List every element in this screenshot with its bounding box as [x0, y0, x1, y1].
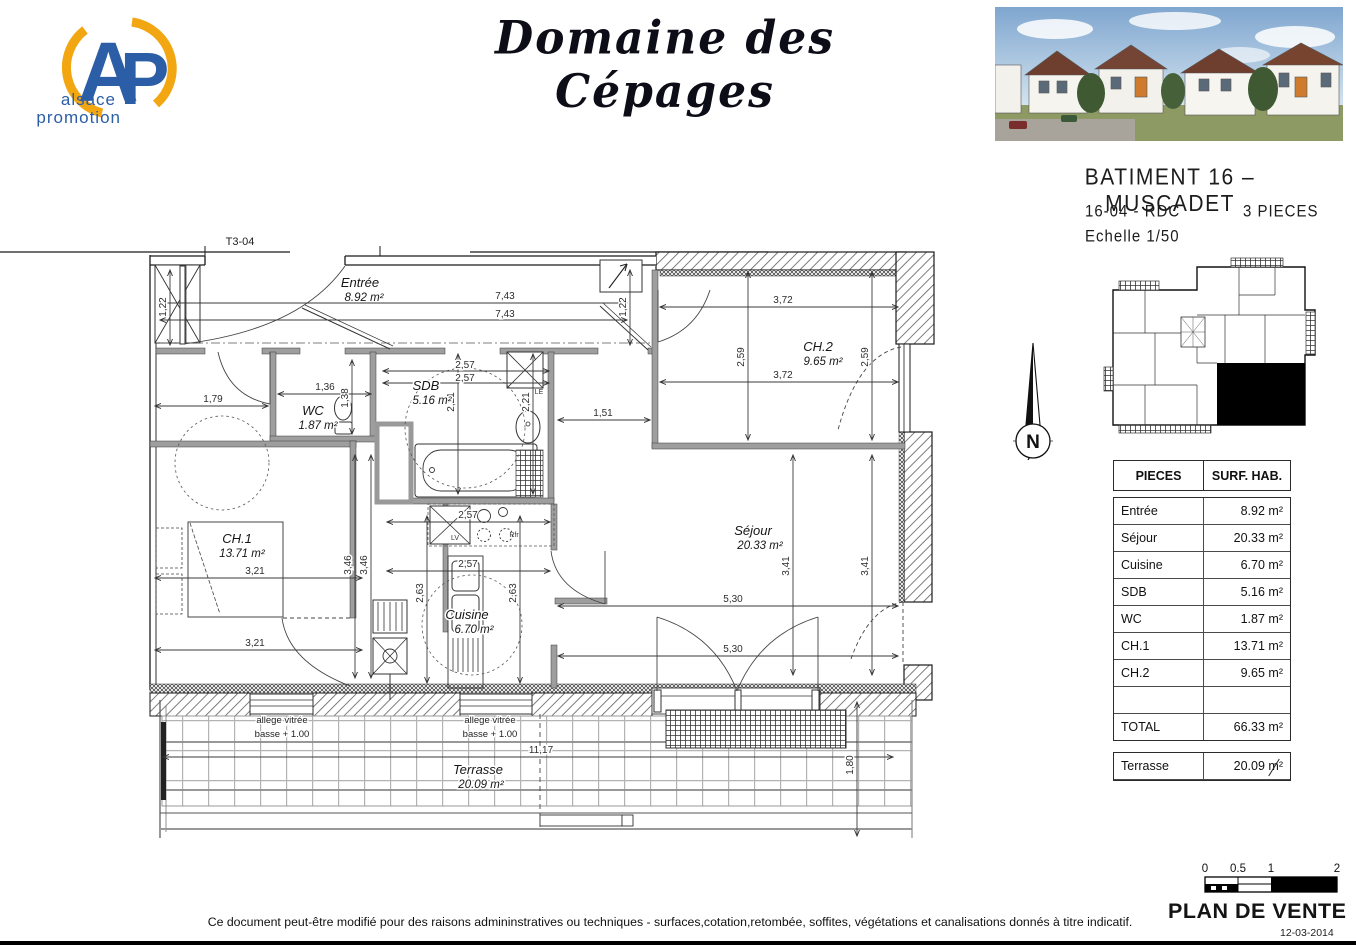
dim-label: 3,41: [860, 556, 871, 576]
scale-tick-0: 0: [1202, 863, 1208, 875]
col-header-surface: SURF. HAB.: [1204, 461, 1290, 490]
scale-tick-05: 0.5: [1230, 863, 1246, 875]
room-label-wc: WC: [302, 403, 324, 418]
plan-ref-label: T3-04: [226, 236, 255, 248]
room-label-sejour: Séjour: [734, 523, 772, 538]
room-area: 9.65 m²: [1204, 660, 1290, 686]
dim-label: 2,57: [458, 559, 478, 570]
dim-label: 3,46: [343, 555, 354, 575]
dim-label: 1,38: [340, 388, 351, 408]
note-lv: LV: [451, 535, 459, 542]
scale-tick-2: 2: [1334, 863, 1340, 875]
room-area: 5.16 m²: [1204, 579, 1290, 605]
floor-plan: T3-04: [0, 228, 960, 860]
date-label: 12-03-2014: [1280, 927, 1334, 939]
room-area-terrasse: 20.09 m²: [457, 779, 505, 791]
dim-label: 5,30: [723, 644, 743, 655]
table-body: Entrée8.92 m² Séjour20.33 m² Cuisine6.70…: [1113, 497, 1291, 741]
dim-label: 2,57: [455, 373, 475, 384]
total-label: TOTAL: [1114, 714, 1204, 740]
room-label-entree: Entrée: [341, 275, 379, 290]
room-area-sdb: 5.16 m²: [413, 395, 453, 407]
scale-tick-1: 1: [1268, 863, 1274, 875]
note-le: LE: [535, 389, 544, 396]
room-name: WC: [1114, 606, 1204, 632]
dim-label: 1,51: [593, 408, 613, 419]
table-row-total: TOTAL66.33 m²: [1114, 714, 1290, 740]
dim-label: 2,57: [455, 360, 475, 371]
table-row: Cuisine6.70 m²: [1114, 552, 1290, 579]
room-area: 8.92 m²: [1204, 498, 1290, 524]
room-area: 20.33 m²: [1204, 525, 1290, 551]
scale-bar: 0 0.5 1 2: [1198, 860, 1348, 900]
table-header: PIECES SURF. HAB.: [1113, 460, 1291, 491]
project-rendering-photo: [995, 7, 1343, 141]
turning-circle-ch1: [175, 416, 269, 510]
room-name: [1114, 687, 1204, 713]
dim-label: 3,21: [245, 566, 265, 577]
room-name: SDB: [1114, 579, 1204, 605]
current-unit-highlight: [1217, 363, 1305, 425]
room-area: 13.71 m²: [1204, 633, 1290, 659]
dim-label: 3,72: [773, 295, 793, 306]
dim-label: 5,30: [723, 594, 743, 605]
areas-table: PIECES SURF. HAB. Entrée8.92 m² Séjour20…: [1113, 460, 1291, 781]
closet-door-arc: [218, 352, 270, 404]
table-row: Entrée8.92 m²: [1114, 498, 1290, 525]
dim-label: 2,59: [860, 347, 871, 367]
note-allege-2b: basse + 1.00: [463, 729, 518, 740]
room-area-sejour: 20.33 m²: [736, 540, 784, 552]
shower-tiles: [516, 450, 543, 497]
logo-text-alsace: alsace: [61, 90, 116, 109]
entry-door-arc: [183, 266, 345, 344]
col-header-pieces: PIECES: [1114, 461, 1204, 490]
dim-label: 1,22: [158, 297, 169, 317]
dim-label: 2,63: [508, 583, 519, 603]
ch2-door-arc: [658, 290, 710, 342]
dim-label: 3,72: [773, 370, 793, 381]
dim-label: 7,43: [495, 291, 515, 302]
terrace-door-arc: [850, 602, 903, 662]
note-rfr: Rfr: [509, 532, 519, 539]
dim-label: 11,17: [529, 745, 554, 756]
alsace-promotion-logo: A P alsace promotion: [28, 4, 203, 132]
disclaimer: Ce document peut-être modifié pour des r…: [140, 915, 1200, 929]
room-name: Cuisine: [1114, 552, 1204, 578]
north-label: N: [1026, 432, 1040, 453]
table-row: SDB5.16 m²: [1114, 579, 1290, 606]
logo-letter-p: P: [120, 37, 169, 120]
room-area-ch1: 13.71 m²: [219, 548, 266, 560]
dim-label: 3,21: [245, 638, 265, 649]
north-arrow: N: [1013, 343, 1053, 460]
project-title: Domaine des Cépages: [400, 11, 930, 118]
dim-label: 1,36: [315, 382, 335, 393]
room-name: Séjour: [1114, 525, 1204, 551]
ch1-door-arc: [282, 618, 350, 686]
french-door-arc-right: [737, 617, 818, 691]
pieces-count: 3 PIECES: [1243, 202, 1319, 221]
scale-label: Echelle 1/50: [1085, 227, 1180, 246]
table-terrace-row: Terrasse 20.09 m²: [1113, 752, 1291, 781]
table-row: WC1.87 m²: [1114, 606, 1290, 633]
dim-label: 2,21: [521, 392, 532, 412]
dim-label: 7,43: [495, 309, 515, 320]
room-area-cuisine: 6.70 m²: [455, 624, 495, 636]
room-name: Entrée: [1114, 498, 1204, 524]
plan-de-vente-page: A P alsace promotion Domaine des Cépages: [0, 0, 1356, 950]
building-key-plan: [1104, 258, 1315, 433]
room-name: CH.2: [1114, 660, 1204, 686]
table-row-empty: [1114, 687, 1290, 714]
logo-text-promotion: promotion: [36, 108, 121, 127]
room-label-sdb: SDB: [413, 378, 440, 393]
unit-ref: 16-04 - RDC: [1085, 202, 1180, 221]
dim-label: 2,57: [458, 510, 478, 521]
dim-label: 3,41: [781, 556, 792, 576]
note-allege-1: allege vitrée: [256, 715, 307, 726]
bottom-rule: [0, 941, 1356, 945]
dim-label: 3,46: [359, 555, 370, 575]
note-allege-2: allege vitrée: [464, 715, 515, 726]
room-area: 6.70 m²: [1204, 552, 1290, 578]
total-area: 66.33 m²: [1204, 714, 1290, 740]
hob-burner: [478, 510, 491, 523]
trellis-panel: [666, 710, 846, 748]
room-name: CH.1: [1114, 633, 1204, 659]
room-area-wc: 1.87 m²: [299, 420, 339, 432]
key-plan: N: [985, 255, 1325, 460]
terrace-name: Terrasse: [1114, 753, 1204, 779]
dim-label: 1,80: [845, 755, 856, 775]
washbasin: [516, 411, 540, 443]
dim-label: 1,22: [618, 297, 629, 317]
room-area: [1204, 687, 1290, 713]
room-label-ch2: CH.2: [803, 339, 833, 354]
note-allege-1b: basse + 1.00: [255, 729, 310, 740]
electrical-panel-icon: [600, 260, 642, 292]
terrace-area: 20.09 m²: [1204, 753, 1290, 779]
bathroom-fixtures: [335, 352, 544, 502]
duct-niche: [377, 424, 411, 502]
dim-label: 1,79: [203, 394, 223, 405]
room-area-entree: 8.92 m²: [345, 292, 385, 304]
room-area-ch2: 9.65 m²: [804, 356, 844, 368]
dim-label: 2,63: [415, 583, 426, 603]
room-label-cuisine: Cuisine: [445, 607, 488, 622]
cuisine-door-arc: [551, 551, 605, 604]
room-area: 1.87 m²: [1204, 606, 1290, 632]
room-label-terrasse: Terrasse: [453, 762, 503, 777]
table-row: Séjour20.33 m²: [1114, 525, 1290, 552]
entry-door-leaf: [180, 266, 185, 344]
room-label-ch1: CH.1: [222, 531, 252, 546]
table-row: CH.29.65 m²: [1114, 660, 1290, 687]
table-row: CH.113.71 m²: [1114, 633, 1290, 660]
dim-label: 2,59: [736, 347, 747, 367]
